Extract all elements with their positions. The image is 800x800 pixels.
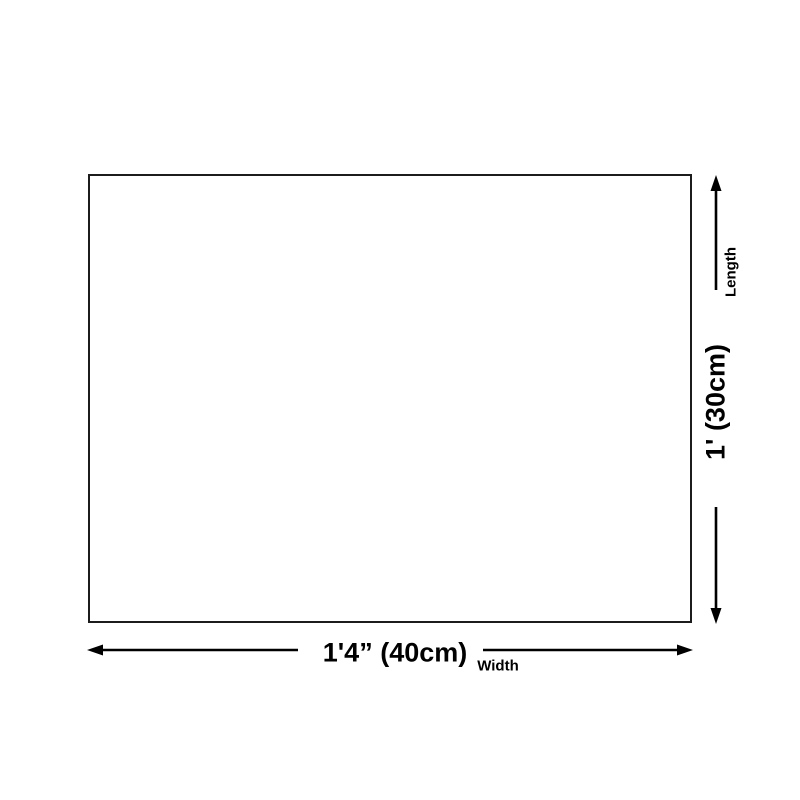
width-arrow-right-icon	[483, 645, 693, 656]
length-dimension-value: 1' (30cm)	[701, 344, 732, 460]
length-arrow-down-icon	[711, 507, 722, 624]
width-arrow-left-icon	[87, 645, 298, 656]
width-axis-label: Width	[477, 658, 519, 675]
length-axis-label: Length	[723, 247, 740, 297]
width-dimension-value: 1'4” (40cm)	[323, 638, 468, 669]
product-outline-rectangle	[88, 174, 692, 623]
dimension-diagram: 1'4” (40cm) Width 1' (30cm) Length	[0, 0, 800, 800]
length-arrow-up-icon	[711, 175, 722, 290]
